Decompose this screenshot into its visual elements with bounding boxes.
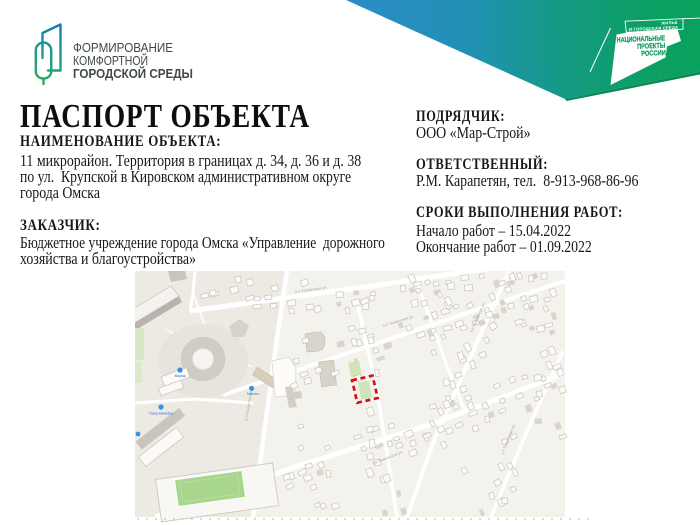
svg-text:Газпромнефть: Газпромнефть — [149, 412, 173, 416]
svg-text:Вираж: Вираж — [175, 374, 186, 378]
svg-text:Магнит: Магнит — [247, 392, 259, 396]
svg-text:РОССИИ: РОССИИ — [641, 49, 666, 58]
